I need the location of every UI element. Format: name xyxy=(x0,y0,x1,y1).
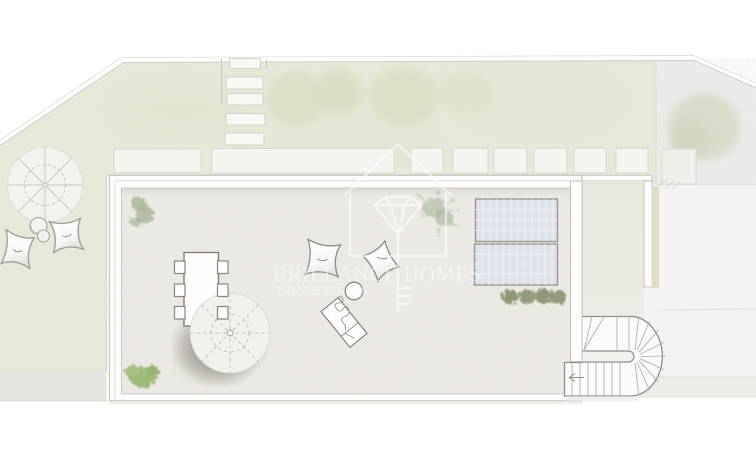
svg-text:INMOBILIARIA: INMOBILIARIA xyxy=(277,284,368,298)
svg-text:BRILLANCE HOMES: BRILLANCE HOMES xyxy=(273,262,482,286)
